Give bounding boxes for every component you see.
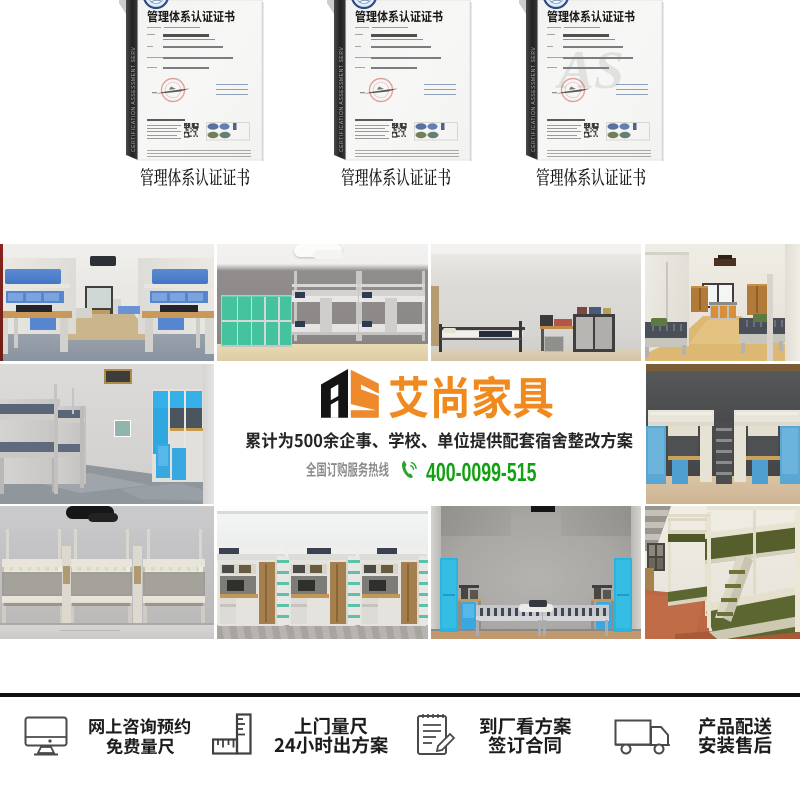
svg-text:CERTIFICATION ASSESSMENT SERV: CERTIFICATION ASSESSMENT SERV bbox=[131, 47, 137, 152]
svg-text:CERTIFICATION ASSESSMENT SERV: CERTIFICATION ASSESSMENT SERV bbox=[339, 47, 345, 152]
svg-text:CERTIFICATION ASSESSMENT SERV: CERTIFICATION ASSESSMENT SERV bbox=[531, 47, 537, 152]
